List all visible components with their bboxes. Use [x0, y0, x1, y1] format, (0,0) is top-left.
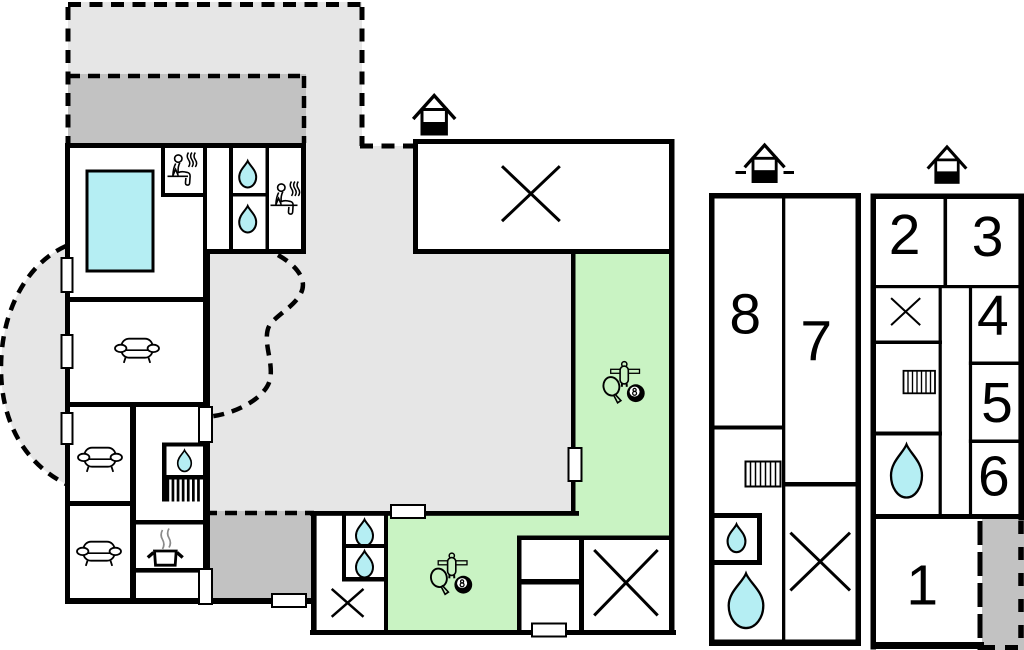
svg-text:2: 2 — [889, 203, 921, 267]
svg-text:5: 5 — [981, 371, 1013, 435]
svg-text:1: 1 — [906, 554, 938, 618]
svg-text:3: 3 — [972, 205, 1004, 269]
svg-text:8: 8 — [729, 283, 761, 347]
svg-text:4: 4 — [977, 284, 1009, 348]
svg-text:6: 6 — [978, 445, 1010, 509]
svg-text:7: 7 — [800, 310, 832, 374]
